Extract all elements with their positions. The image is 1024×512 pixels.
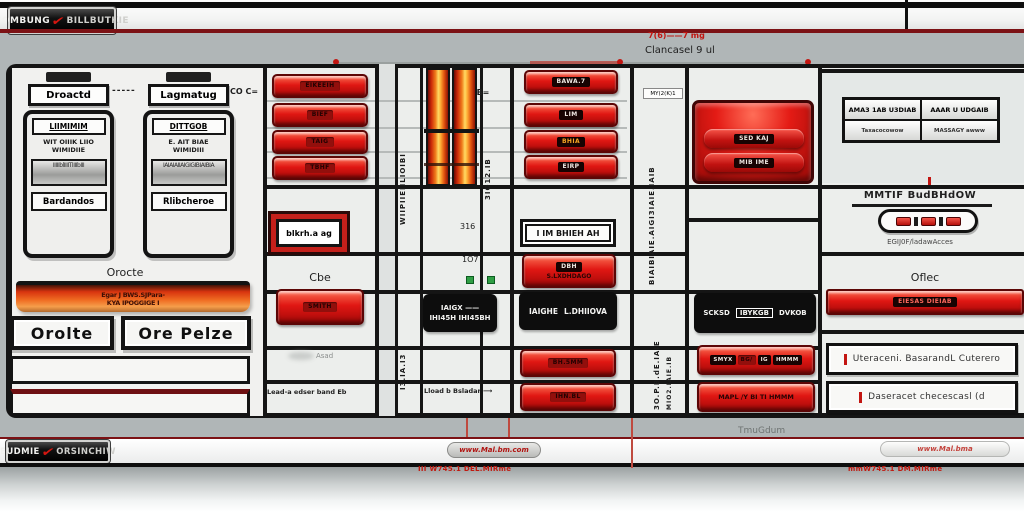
button-label: EIRP — [558, 162, 585, 172]
info-line: IAIGX —— — [441, 304, 479, 312]
grid-line — [630, 64, 634, 416]
button-label: BH.5MM — [548, 358, 588, 368]
rotated-label: MIO2.IAIE.IB — [666, 300, 673, 410]
lower-gray-band — [0, 418, 1024, 439]
button-label: TBHF — [305, 163, 334, 173]
rotated-label: I3.IA.I3 — [399, 300, 407, 390]
url-badge[interactable]: www.Mal.bma — [880, 441, 1010, 457]
red-button[interactable]: TBHF — [272, 156, 368, 180]
brand-text-right: BILLBUTKIE — [67, 16, 129, 26]
button-label: SMITH — [303, 302, 337, 312]
green-indicator — [487, 276, 495, 284]
framed-field[interactable]: I IM BHIEH AH — [520, 219, 616, 247]
rotated-label: 3O.P.B.dE.IAIE — [653, 295, 661, 410]
info-segment: IBYKGB — [736, 308, 773, 318]
pill-caption: EGIJ0F/ladawAcces — [850, 238, 990, 246]
panel-graphic: IAIAIAIIAIGIGIBIAIBIA — [151, 159, 227, 186]
empty-field[interactable] — [10, 356, 250, 384]
glossy-red-panel: SED KAJ MIB IME — [692, 100, 814, 184]
orange-bar-text1: Egar J BWS.SJPara- — [101, 291, 165, 299]
gauge-cylinder — [452, 68, 477, 186]
panel-text-line1: E. AIT BIAE — [147, 138, 230, 146]
red-button[interactable]: MAPL /Y BI TI HMMM — [697, 382, 815, 412]
row-marker-icon — [859, 392, 862, 403]
toggle-segment — [921, 217, 936, 226]
button-label: HMMM — [773, 355, 802, 365]
faint-note: Asad — [316, 352, 333, 360]
rotated-label: BIAIBIAIE.AIGI3IAIE.IAIB — [648, 105, 656, 285]
panel-label: Droactd — [28, 84, 109, 106]
black-info-box: SCKSD IBYKGB DVKOB — [694, 293, 816, 333]
red-stub — [466, 418, 468, 438]
right-heading: MMTIF BudBHdOW — [845, 190, 995, 201]
panel-body: LIIMIMIM WIT OIIIK LIIO WIMIDIIE IIIIIbl… — [23, 110, 114, 258]
green-indicator — [466, 276, 474, 284]
tiny-label-box: MY(2(K)1 — [643, 88, 683, 99]
table-cell[interactable]: AMA3 1AB U3DIAB — [845, 100, 920, 119]
red-stub — [508, 418, 510, 438]
panel-graphic: IIIIIblIIIITIIIIbIII — [31, 159, 107, 186]
grid-line — [480, 64, 483, 416]
red-button[interactable]: DBH S.LXDHDAGO — [522, 254, 616, 288]
info-segment: SCKSD — [703, 309, 729, 317]
grid-line — [685, 218, 818, 222]
button-label: BHIA — [557, 137, 585, 147]
row-text: Daseracet checescasl (d — [868, 392, 985, 402]
brand-text-right: ORSINCHIW — [56, 447, 116, 457]
red-button[interactable]: BIEF — [272, 103, 368, 127]
button-label: BAWA.7 — [552, 77, 591, 87]
row-note: Lead-a edser band Eb — [267, 388, 373, 396]
connector-dash: ----- — [112, 86, 136, 96]
grid-line — [263, 185, 1024, 189]
brand-check-icon: ✔ — [51, 16, 66, 26]
app-window: SOMBUNG ✔ BILLBUTKIE 7(6)——7 mg Clancase… — [0, 0, 1024, 512]
orange-bar-text2: KYA IPOGGIGE I — [107, 299, 159, 307]
grid-line — [263, 64, 267, 416]
panel-body: DITTGOB E. AIT BIAE WIMIDIII IAIAIAIIAIG… — [143, 110, 234, 258]
footer-red-note: mmW745.1 DM.MIRme — [848, 465, 942, 473]
smudge — [288, 352, 314, 360]
top-border — [0, 2, 1024, 8]
button-sublabel: S.LXDHDAGO — [547, 273, 592, 280]
value-note: 1O7 — [462, 255, 478, 264]
button-label: SMYX — [710, 355, 735, 365]
button-label: LIM — [559, 110, 582, 120]
footer-brand-logo[interactable]: EUDMIE ✔ ORSINCHIW — [6, 440, 110, 463]
smith-button[interactable]: SMITH — [276, 289, 364, 325]
black-info-box: IAIGHE L.DHIIOVA — [519, 292, 617, 330]
server-panel-a: Droactd LIIMIMIM WIT OIIIK LIIO WIMIDIIE… — [22, 70, 115, 260]
panel-text-line1: WIT OIIIK LIIO — [27, 138, 110, 146]
button-label: BG/ — [738, 355, 756, 365]
orange-gradient-bar: Egar J BWS.SJPara- KYA IPOGGIGE I — [16, 281, 250, 312]
row-note: Lload b Bsladar ⟶ — [424, 387, 574, 395]
panel-cap — [46, 72, 91, 82]
header-red-rule — [0, 29, 1024, 33]
table-cell[interactable]: AAAR U UDGAIB — [922, 100, 997, 119]
dose-marks: 7(6)——7 mg — [648, 31, 705, 40]
ore-pelze-button[interactable]: Ore Pelze — [121, 316, 251, 350]
grid-line — [818, 69, 1024, 73]
brand-text-left: EUDMIE — [0, 447, 40, 457]
table-cell[interactable]: MASSAGY awww — [922, 121, 997, 140]
black-info-box: IAIGX —— IHI45H IHI45BH — [423, 294, 497, 332]
red-button[interactable]: BHIA — [524, 130, 618, 153]
row-text: Uteraceni. BasarandL Cuterero — [853, 354, 1000, 364]
button-label: EIKEEIH — [300, 81, 339, 91]
red-bar[interactable]: EIESAS DIEIAB — [826, 289, 1024, 315]
button-label: BIEF — [307, 110, 334, 120]
table-cell[interactable]: Taxacocowow — [845, 121, 920, 140]
orolte-button[interactable]: Orolte — [10, 316, 114, 350]
list-row[interactable]: Daseracet checescasl (d — [826, 381, 1018, 413]
info-segment: DVKOB — [779, 309, 807, 317]
info-segment: IAIGHE — [529, 307, 558, 316]
button-label: DBH — [556, 262, 582, 272]
value-note: 316 — [460, 222, 475, 231]
titlebar-tick — [905, 0, 908, 29]
red-button[interactable]: BAWA.7 — [524, 70, 618, 94]
grid-line — [510, 64, 514, 416]
segmented-toggle[interactable] — [878, 209, 978, 233]
cylinder-cross-line — [424, 163, 479, 166]
gray-strip-bg — [379, 64, 395, 416]
empty-field-redtop[interactable] — [10, 389, 250, 416]
panel-text-line2: WIMIDIIE — [27, 146, 110, 154]
info-segment: L.DHIIOVA — [564, 307, 607, 316]
gray-note: TmuGdum — [738, 426, 785, 436]
red-button[interactable]: BH.5MM — [520, 349, 616, 377]
glossy-bar-button[interactable]: SED KAJ — [704, 129, 804, 148]
panel-title: LIIMIMIM — [32, 118, 106, 135]
red-stub — [631, 418, 633, 468]
panel-cap — [166, 72, 211, 82]
red-button[interactable]: LIM — [524, 103, 618, 127]
server-panel-b: Lagmatug DITTGOB E. AIT BIAE WIMIDIII IA… — [142, 70, 235, 260]
panel-label: Lagmatug — [148, 84, 229, 106]
list-row[interactable]: Uteraceni. BasarandL Cuterero — [826, 343, 1018, 375]
url-badge[interactable]: www.Mal.bm.com — [447, 442, 541, 458]
button-label: IG — [758, 355, 771, 365]
grid-line — [375, 64, 379, 416]
section-label-oflec: Oflec — [895, 271, 955, 284]
bar-chip-label: EIESAS DIEIAB — [893, 297, 957, 307]
red-button[interactable]: EIRP — [524, 155, 618, 179]
brand-check-icon: ✔ — [40, 447, 55, 457]
grid-line — [685, 64, 689, 416]
toggle-separator — [939, 217, 943, 226]
brand-text-left: SOMBUNG — [0, 16, 50, 26]
grid-line — [818, 64, 822, 416]
grid-line — [818, 252, 1024, 256]
toggle-segment — [896, 217, 911, 226]
framed-field[interactable]: blkrh.a ag — [276, 219, 342, 247]
panel-text-line2: WIMIDIII — [147, 146, 230, 154]
rotated-label: 3IO12.IB — [484, 138, 492, 200]
band-caption: Clancasel 9 ul — [645, 45, 715, 56]
info-line: IHI45H IHI45BH — [429, 314, 490, 322]
button-label: TAIG — [306, 137, 333, 147]
bottom-fade — [0, 467, 1024, 512]
gauge-cylinder — [426, 68, 450, 186]
section-label-cbe: Cbe — [300, 271, 340, 284]
grid-line — [395, 64, 398, 416]
button-label: SED KAJ — [734, 134, 774, 144]
panel-footer-label: Bardandos — [31, 192, 107, 211]
toggle-separator — [914, 217, 918, 226]
rotated-label: WIIPIIEIILIOIBI — [399, 130, 407, 225]
heading-underline — [852, 204, 992, 207]
panel-title: DITTGOB — [152, 118, 226, 135]
panel-footer-label: Rlibcheroe — [151, 192, 227, 211]
option-table: AMA3 1AB U3DIAB AAAR U UDGAIB Taxacocowo… — [842, 97, 1000, 143]
red-button[interactable]: SMYX BG/ IG HMMM — [697, 345, 815, 375]
red-tick — [928, 177, 931, 185]
grid-line — [420, 64, 423, 416]
glossy-bar-button[interactable]: MIB IME — [704, 153, 804, 172]
section-label-orocte: Orocte — [95, 266, 155, 279]
footer-red-note: III W745.1 DEL.MIRme — [418, 465, 511, 473]
cylinder-cross-line — [424, 129, 479, 133]
red-button[interactable]: TAIG — [272, 130, 368, 154]
row-marker-icon — [844, 354, 847, 365]
grid-line — [818, 330, 1024, 334]
button-label: MAPL /Y BI TI HMMM — [718, 393, 794, 401]
button-label: MIB IME — [734, 158, 774, 168]
toggle-segment — [946, 217, 961, 226]
red-button[interactable]: EIKEEIH — [272, 74, 368, 98]
